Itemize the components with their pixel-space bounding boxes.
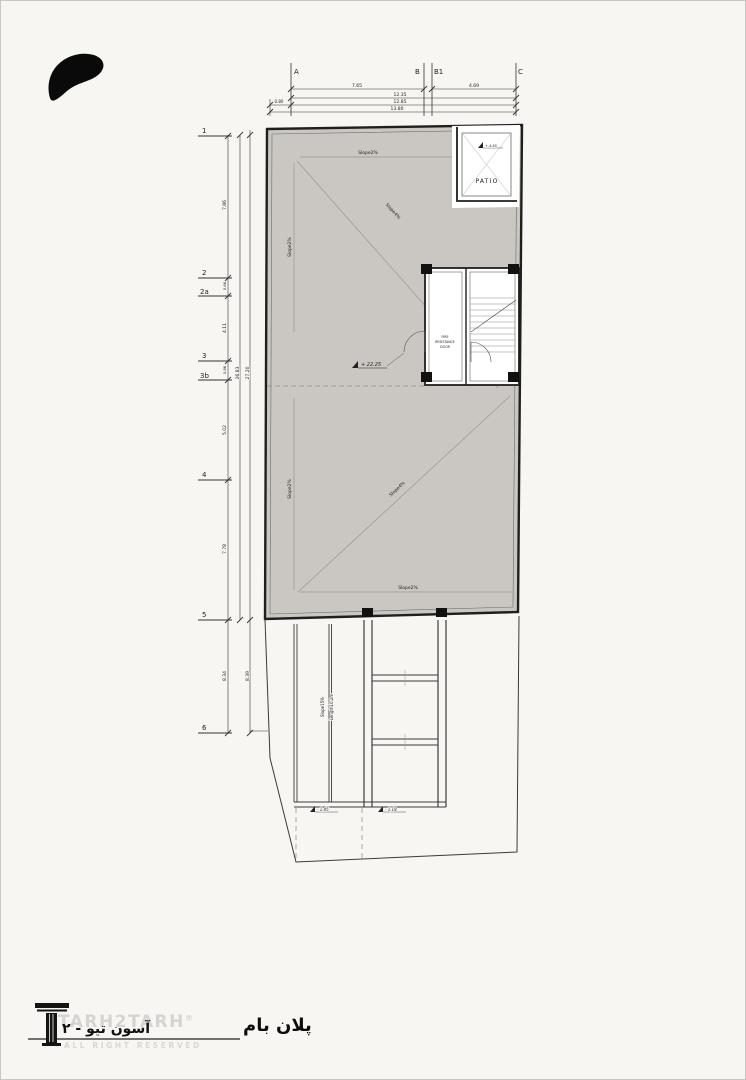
grid-row-label-1: 1 <box>202 127 206 135</box>
yard-level-text: - 1.18 <box>385 807 397 812</box>
grid-row-label-4: 4 <box>202 471 207 479</box>
plan-drawing: A B B1 C 7.65 4.69 12.35 0.80 12.85 13.8… <box>0 0 746 1080</box>
lower-site: Slope15% Length10.2m - 1.45 - 1.18 <box>265 616 519 862</box>
grid-col-label-c: C <box>518 68 523 76</box>
slope-label-bottom: Slope2% <box>398 585 418 591</box>
slope-label-left-upper: Slope2% <box>287 236 293 256</box>
grid-row-label-5: 5 <box>202 611 206 619</box>
dim-left-56: 8.34 <box>222 671 228 681</box>
ramp-length-text: Length10.2m <box>329 694 334 721</box>
dim-left-total-b: 27.20 <box>245 366 251 379</box>
dim-top-1380: 13.80 <box>391 106 404 112</box>
patio: + 4.85 PATIO <box>452 125 520 208</box>
roof-level-text: + 22.25 <box>361 362 381 368</box>
dim-left-45: 7.78 <box>222 544 228 554</box>
ramp-level-text: - 1.45 <box>317 807 329 812</box>
grid-row-label-2: 2 <box>202 269 206 277</box>
fire-door-text-3: DOOR <box>440 345 450 349</box>
dim-top-ab: 7.65 <box>352 83 362 89</box>
grid-row-label-2a: 2a <box>200 288 209 296</box>
grid-col-label-b1: B1 <box>434 68 443 76</box>
plan-title: پلان بام <box>243 1015 312 1036</box>
grid-row-label-6: 6 <box>202 724 207 732</box>
dim-top-b1c: 4.69 <box>469 83 479 89</box>
slope-label-top: Slope2% <box>358 150 378 156</box>
slope-label-left-lower: Slope2% <box>287 478 293 498</box>
grid-col-label-a: A <box>294 68 299 76</box>
dim-left-56-outer: 8.39 <box>245 671 251 681</box>
ramp-lines <box>294 624 332 802</box>
fire-door-text-1: FIRE <box>441 335 448 339</box>
north-arrow-icon <box>49 54 104 101</box>
dim-left-12: 7.86 <box>222 200 228 210</box>
dim-left-33b: 0.86 <box>222 365 227 374</box>
row-grid-dimensions <box>198 130 268 736</box>
drawing-sheet: A B B1 C 7.65 4.69 12.35 0.80 12.85 13.8… <box>0 0 746 1080</box>
grid-col-label-b: B <box>415 68 420 76</box>
courtyard-walls <box>364 620 446 807</box>
dim-top-080: 0.80 <box>275 99 284 104</box>
projection-dashed-lines <box>296 808 362 860</box>
dim-top-1235: 12.35 <box>394 92 407 98</box>
ramp-slope-text: Slope15% <box>320 697 325 717</box>
dim-left-total-a: 26.83 <box>235 366 241 379</box>
dim-left-2a3: 4.11 <box>222 323 228 333</box>
dim-top-1285: 12.85 <box>394 99 407 105</box>
brand-subtext: ALL RIGHT RESERVED <box>64 1041 202 1050</box>
grid-row-label-3b: 3b <box>200 372 209 380</box>
dim-left-3b4: 5.02 <box>222 425 228 435</box>
brand-overlay-signature: آسون تیو - ۲ <box>62 1021 150 1037</box>
patio-level-text: + 4.85 <box>485 144 498 148</box>
registered-mark-icon: ® <box>185 1013 195 1022</box>
grid-row-label-3: 3 <box>202 352 206 360</box>
patio-label: PATIO <box>475 178 498 185</box>
dim-left-22a: 0.66 <box>222 281 227 290</box>
fire-door-text-2: RESISTANCE <box>435 340 455 344</box>
courtyard-beams <box>294 675 446 807</box>
